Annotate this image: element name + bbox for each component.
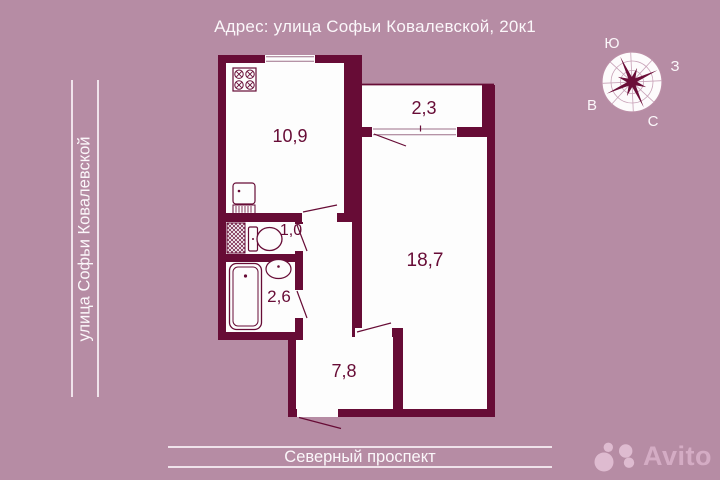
hallway-area-label: 7,8 <box>331 361 356 381</box>
kitchen-area-label: 10,9 <box>272 126 307 146</box>
compass-rose-icon: Ю З В С <box>580 25 700 135</box>
living-door-opening <box>355 328 392 337</box>
vent-shaft-hatch <box>227 223 245 253</box>
wc-area-label: 1,0 <box>280 222 302 239</box>
bathroom-area-label: 2,6 <box>267 287 291 306</box>
compass-label-south: Ю <box>604 35 619 52</box>
avito-logo: Avito <box>592 436 712 476</box>
street-bottom: Северный проспект <box>168 446 552 468</box>
compass-label-north: С <box>648 113 659 130</box>
avito-logo-text: Avito <box>643 436 712 476</box>
stove-icon <box>233 68 256 91</box>
washbasin-icon <box>266 260 291 279</box>
compass-label-east: В <box>587 97 597 114</box>
street-left-label: улица Софьи Ковалевской <box>76 136 95 341</box>
floor-plan: 10,9 2,3 1,0 2,6 18,7 7,8 <box>210 50 505 435</box>
street-bottom-label: Северный проспект <box>284 448 435 466</box>
kitchen-sink-icon <box>233 183 255 214</box>
bathtub-icon <box>230 264 262 330</box>
entrance-door-opening <box>297 409 338 417</box>
kitchen-door-opening <box>302 213 337 222</box>
toilet-icon <box>249 227 283 251</box>
hallway-corridor <box>303 222 352 332</box>
entrance-door-swing <box>299 418 341 429</box>
avito-logo-icon <box>592 436 640 476</box>
compass-label-west: З <box>670 58 679 75</box>
balcony-area-label: 2,3 <box>411 98 436 118</box>
page-root: Адрес: улица Софьи Ковалевской, 20к1 ули… <box>0 0 720 480</box>
living-area-label: 18,7 <box>407 250 444 271</box>
street-left: улица Софьи Ковалевской <box>71 80 99 397</box>
